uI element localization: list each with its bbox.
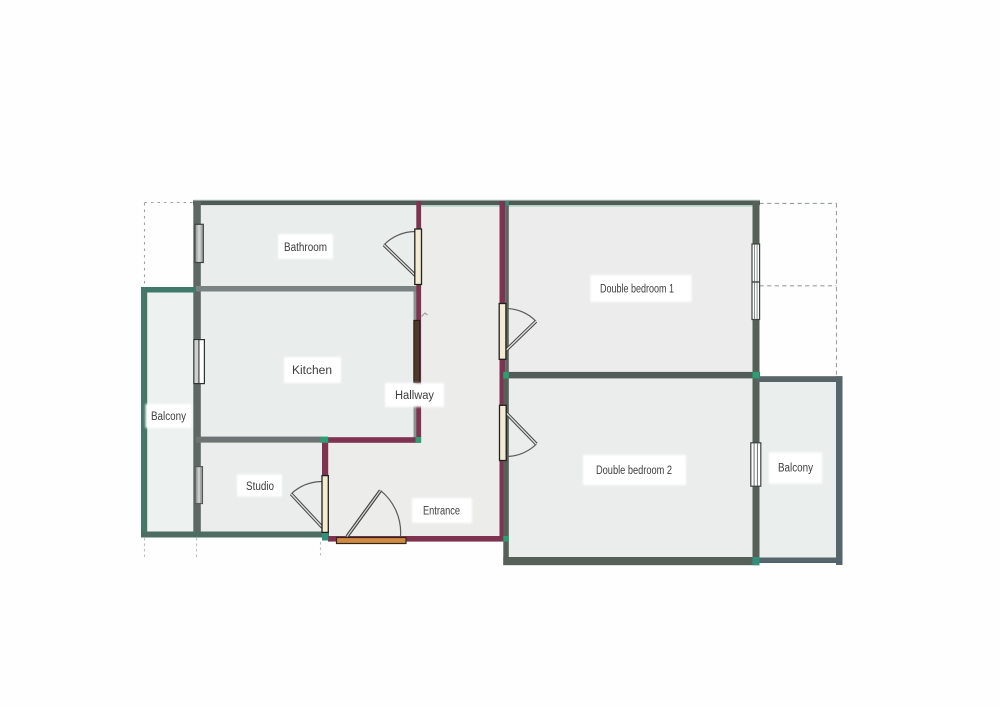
svg-text:Entrance: Entrance [423, 506, 460, 518]
svg-text:Balcony: Balcony [151, 411, 186, 423]
svg-text:Bathroom: Bathroom [284, 242, 327, 254]
svg-text:Hallway: Hallway [395, 390, 434, 402]
svg-text:Double bedroom 1: Double bedroom 1 [600, 284, 674, 296]
svg-text:Balcony: Balcony [778, 463, 813, 475]
svg-text:Double bedroom 2: Double bedroom 2 [596, 465, 672, 477]
svg-text:Studio: Studio [246, 481, 274, 493]
svg-text:Kitchen: Kitchen [292, 365, 332, 377]
